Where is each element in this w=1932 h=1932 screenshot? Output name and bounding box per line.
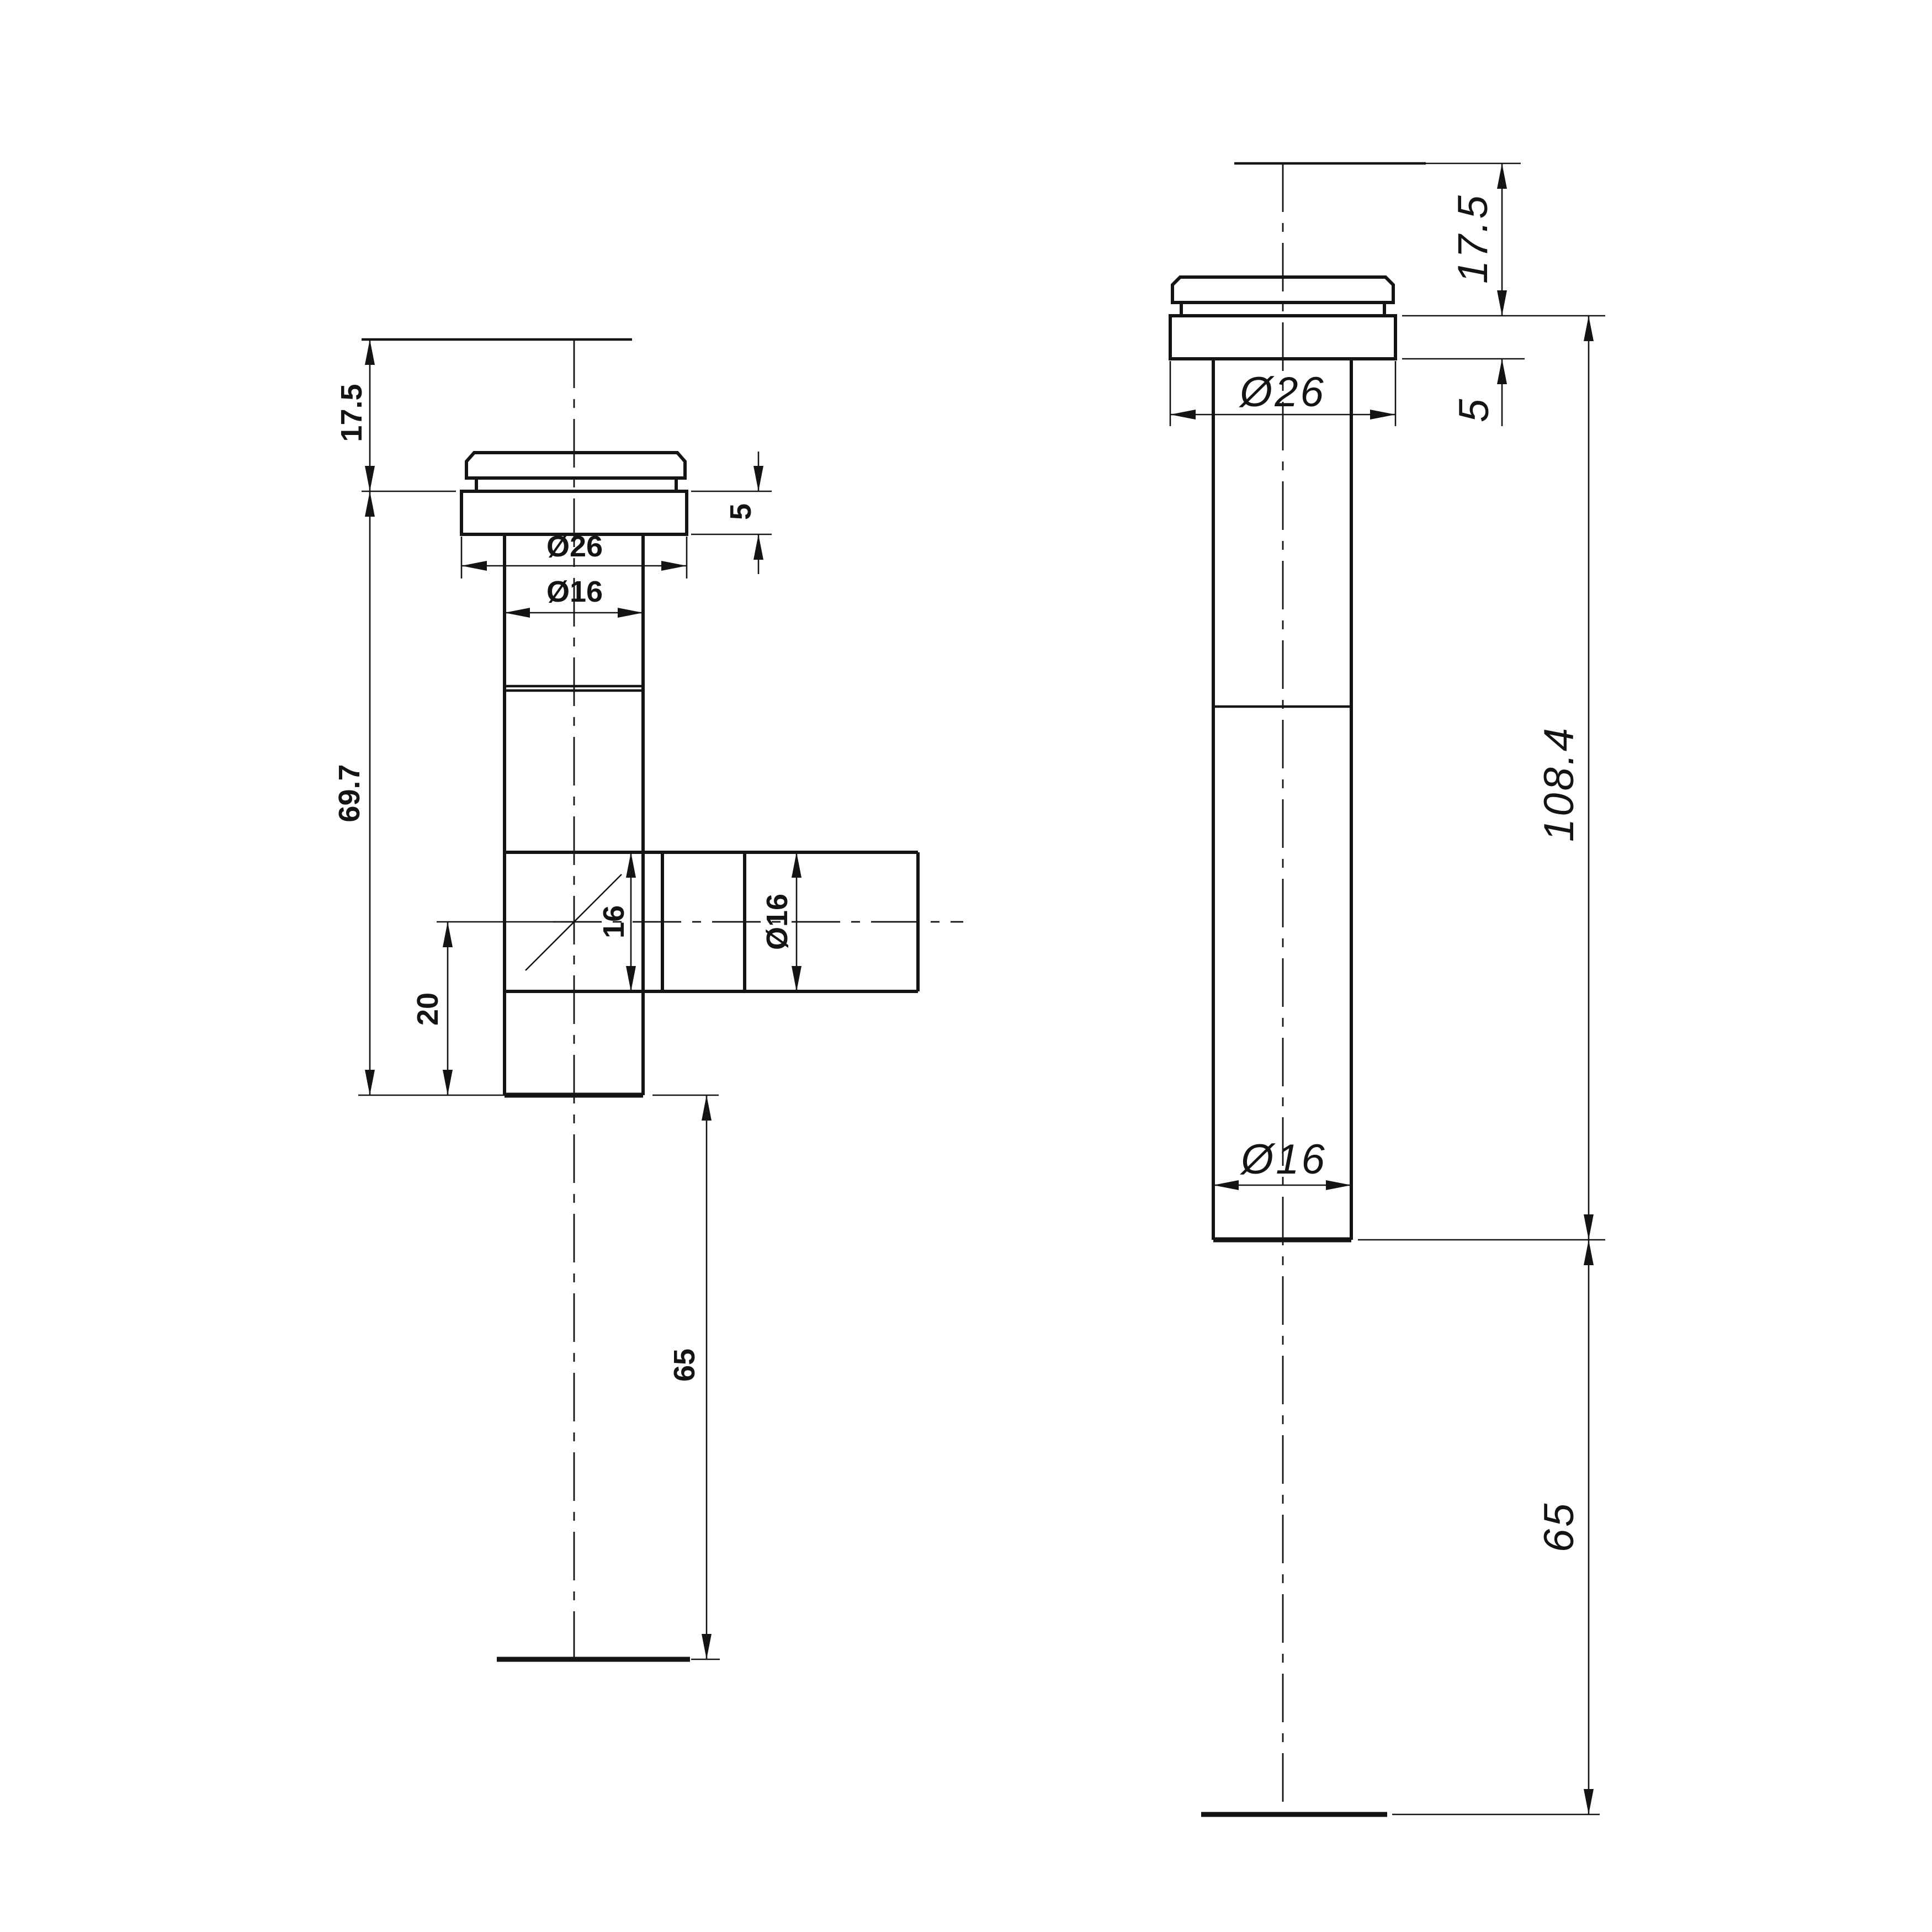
left-view: 17.5 69.7 20 16 Ø16 Ø26 Ø16 5 65 — [333, 339, 963, 1659]
arrowhead — [702, 1634, 712, 1659]
right-dim-tail-length-label: 65 — [1536, 1501, 1583, 1553]
cap-outline — [466, 453, 685, 478]
right-view: 17.5 5 Ø26 Ø16 108.4 65 — [1170, 163, 1605, 1814]
arrowhead — [1326, 1180, 1351, 1190]
left-dim-flange-dia-label: Ø26 — [546, 530, 603, 563]
arrowhead — [1497, 290, 1507, 316]
drawing-canvas: 17.5 69.7 20 16 Ø16 Ø26 Ø16 5 65 — [0, 0, 1932, 1932]
arrowhead — [365, 491, 375, 517]
arrowhead — [626, 852, 636, 878]
right-dim-flange-thickness-label: 5 — [1451, 397, 1498, 422]
arrowhead — [753, 466, 763, 491]
left-dim-branch-dia-label: Ø16 — [761, 894, 794, 950]
arrowhead — [618, 608, 643, 618]
arrowhead — [1213, 1180, 1239, 1190]
arrowhead — [1584, 1214, 1594, 1240]
arrowhead — [1497, 163, 1507, 189]
arrowhead — [1584, 316, 1594, 341]
arrowhead — [1584, 1240, 1594, 1265]
left-dim-body-length-label: 69.7 — [333, 764, 366, 822]
left-dim-top-height-label: 17.5 — [335, 384, 368, 442]
left-dimension-labels: 17.5 69.7 20 16 Ø16 Ø26 Ø16 5 65 — [333, 384, 794, 1382]
arrowhead — [753, 534, 763, 560]
left-dim-branch-bore-label: 16 — [597, 905, 630, 938]
arrowhead — [702, 1095, 712, 1121]
arrowhead — [365, 1070, 375, 1095]
left-dim-flange-thickness-label: 5 — [724, 503, 757, 520]
arrowhead — [365, 466, 375, 491]
right-dim-flange-dia-label: Ø26 — [1238, 369, 1326, 416]
arrowhead — [443, 1070, 453, 1095]
technical-drawing: 17.5 69.7 20 16 Ø16 Ø26 Ø16 5 65 — [0, 0, 1932, 1932]
arrowhead — [626, 966, 636, 991]
arrowhead — [1370, 410, 1395, 420]
arrowhead — [792, 966, 802, 991]
arrowhead — [443, 922, 453, 947]
arrowhead — [1584, 1789, 1594, 1814]
arrowhead — [1497, 359, 1507, 384]
right-dim-overall-length-label: 108.4 — [1536, 726, 1583, 842]
right-dim-stem-dia-label: Ø16 — [1239, 1136, 1327, 1183]
right-dimension-lines — [1170, 163, 1605, 1814]
arrowhead — [505, 608, 530, 618]
left-part-outline — [461, 453, 918, 1095]
left-dim-stem-dia-label: Ø16 — [546, 575, 603, 608]
left-dim-branch-offset-label: 20 — [411, 992, 444, 1026]
right-dim-top-height-label: 17.5 — [1450, 193, 1496, 284]
arrowhead — [661, 561, 687, 571]
arrowhead — [461, 561, 487, 571]
arrowhead — [1170, 410, 1196, 420]
arrowhead — [365, 339, 375, 365]
right-arrowheads — [1170, 163, 1594, 1814]
right-dimension-labels: 17.5 5 Ø26 Ø16 108.4 65 — [1238, 193, 1583, 1552]
left-dim-tail-length-label: 65 — [668, 1349, 701, 1382]
arrowhead — [792, 852, 802, 878]
